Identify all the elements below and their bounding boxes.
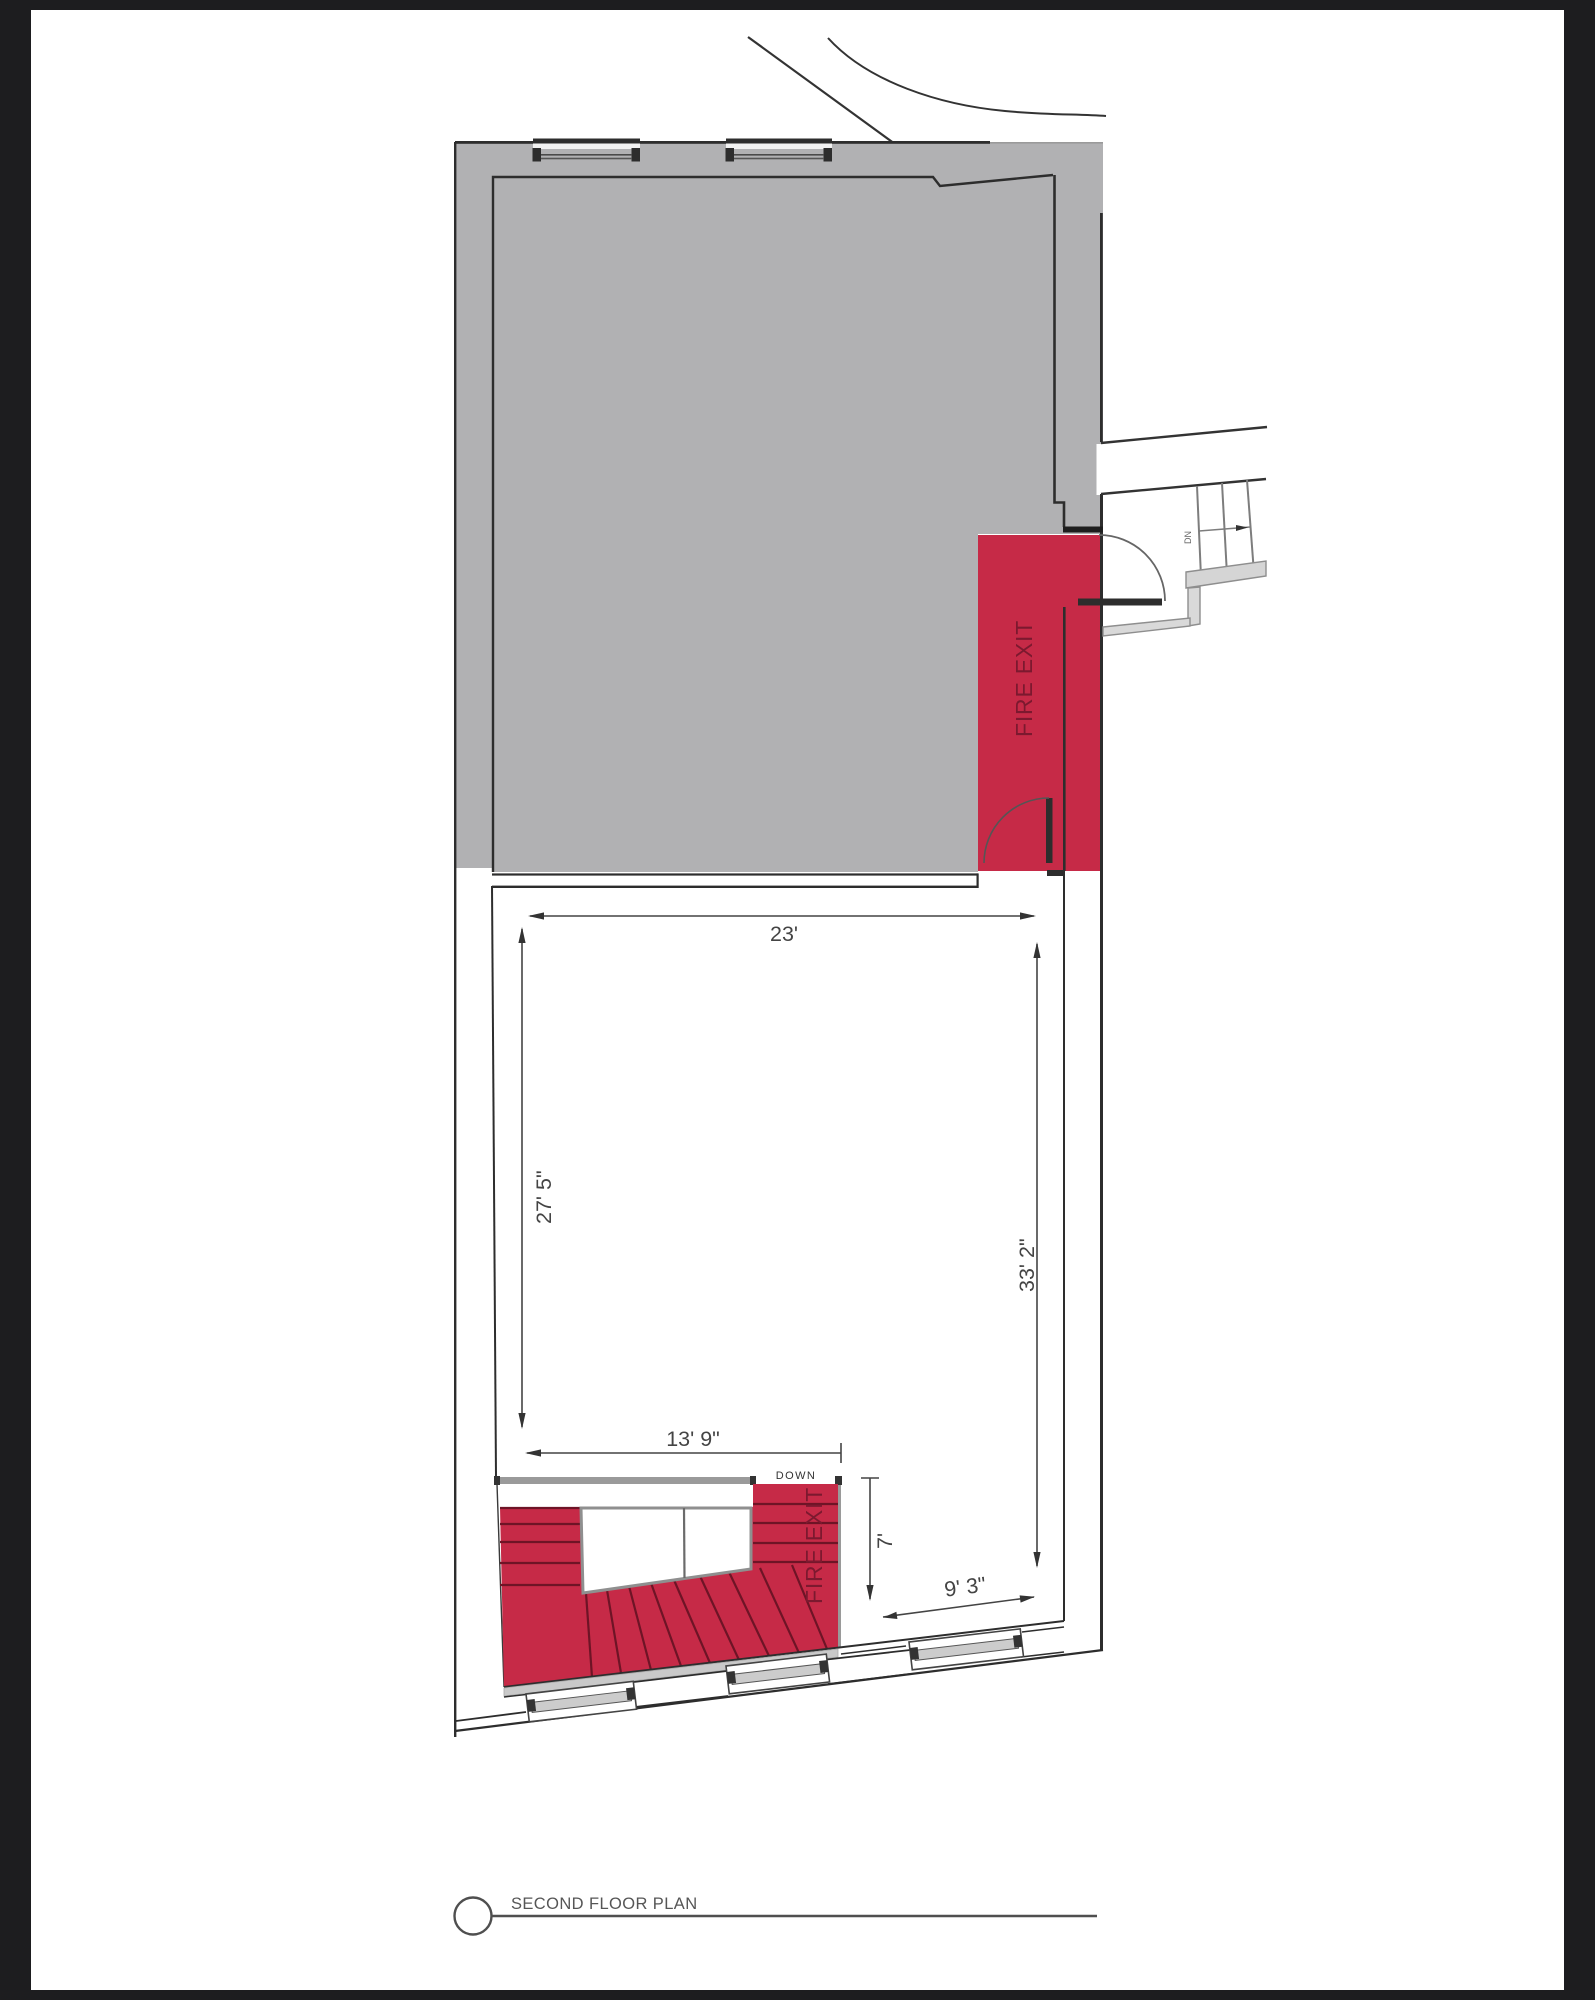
svg-text:13' 9": 13' 9" [666,1427,720,1451]
svg-text:DOWN: DOWN [776,1470,816,1482]
svg-text:33' 2": 33' 2" [1015,1238,1039,1292]
svg-text:DN: DN [1183,531,1193,544]
svg-text:7': 7' [873,1533,897,1549]
svg-text:SECOND FLOOR PLAN: SECOND FLOOR PLAN [511,1895,698,1913]
svg-text:FIRE EXIT: FIRE EXIT [801,1487,827,1604]
svg-text:FIRE EXIT: FIRE EXIT [1011,620,1037,737]
svg-text:23': 23' [770,922,798,946]
svg-text:27' 5": 27' 5" [532,1170,556,1224]
